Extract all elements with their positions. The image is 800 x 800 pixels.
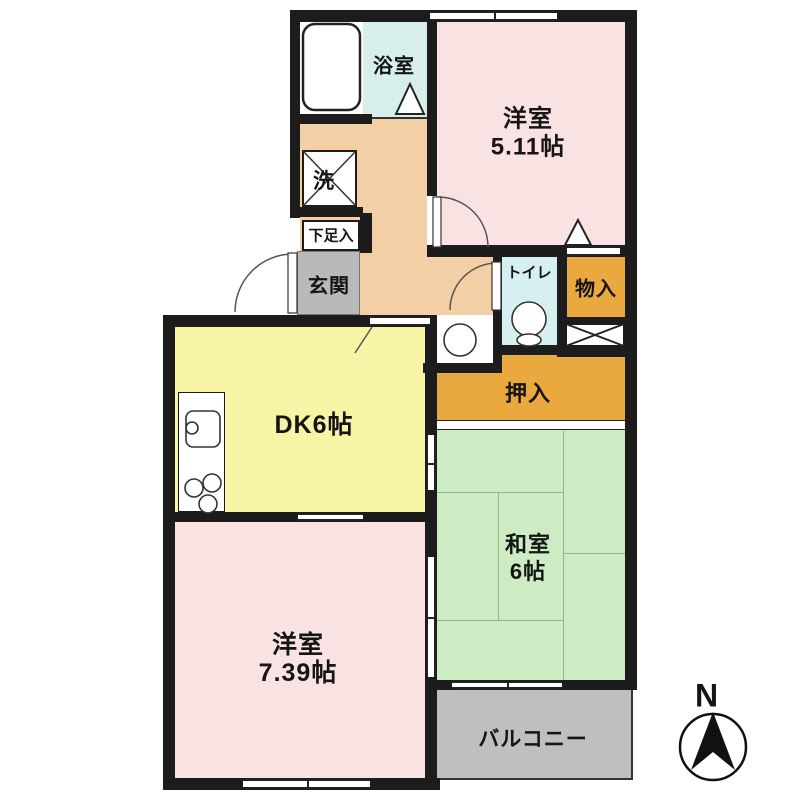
label-storage: 物入 <box>575 273 617 302</box>
storage-cross-icon <box>566 324 624 346</box>
washbasin-icon <box>444 324 476 356</box>
kitchen-sink-icon <box>186 411 220 447</box>
floor-plan: 浴室 洗 下足入 玄関 洋室 5.11帖 トイレ 物入 押入 DK6帖 和室 6… <box>0 0 800 800</box>
label-western-2-area: 7.39帖 <box>259 653 338 689</box>
label-western-1-area: 5.11帖 <box>491 127 565 162</box>
label-compass-n: N <box>695 678 719 715</box>
toilet-door-leaf <box>492 262 501 310</box>
bath-door-triangle-icon <box>396 84 424 114</box>
label-bath: 浴室 <box>373 50 415 79</box>
stove-icon <box>185 474 221 513</box>
compass-icon <box>680 712 746 780</box>
west1-door-leaf <box>433 197 441 247</box>
entrance-door-arc <box>235 254 293 312</box>
label-balcony: バルコニー <box>478 723 588 753</box>
storage-door-triangle-icon <box>565 220 591 245</box>
label-toilet: トイレ <box>506 262 551 283</box>
entrance-door-leaf <box>288 253 297 313</box>
label-washer: 洗 <box>313 165 335 195</box>
label-dk: DK6帖 <box>274 405 353 441</box>
toilet-icon <box>512 302 546 346</box>
bathtub-icon <box>303 24 360 110</box>
dk-door-leaf <box>355 327 372 353</box>
label-closet: 押入 <box>505 376 551 408</box>
label-shoe-box: 下足入 <box>308 225 353 246</box>
west1-door-arc <box>438 197 488 247</box>
label-entrance: 玄関 <box>308 270 350 299</box>
label-japanese-area: 6帖 <box>510 554 546 586</box>
toilet-door-arc <box>450 263 497 310</box>
